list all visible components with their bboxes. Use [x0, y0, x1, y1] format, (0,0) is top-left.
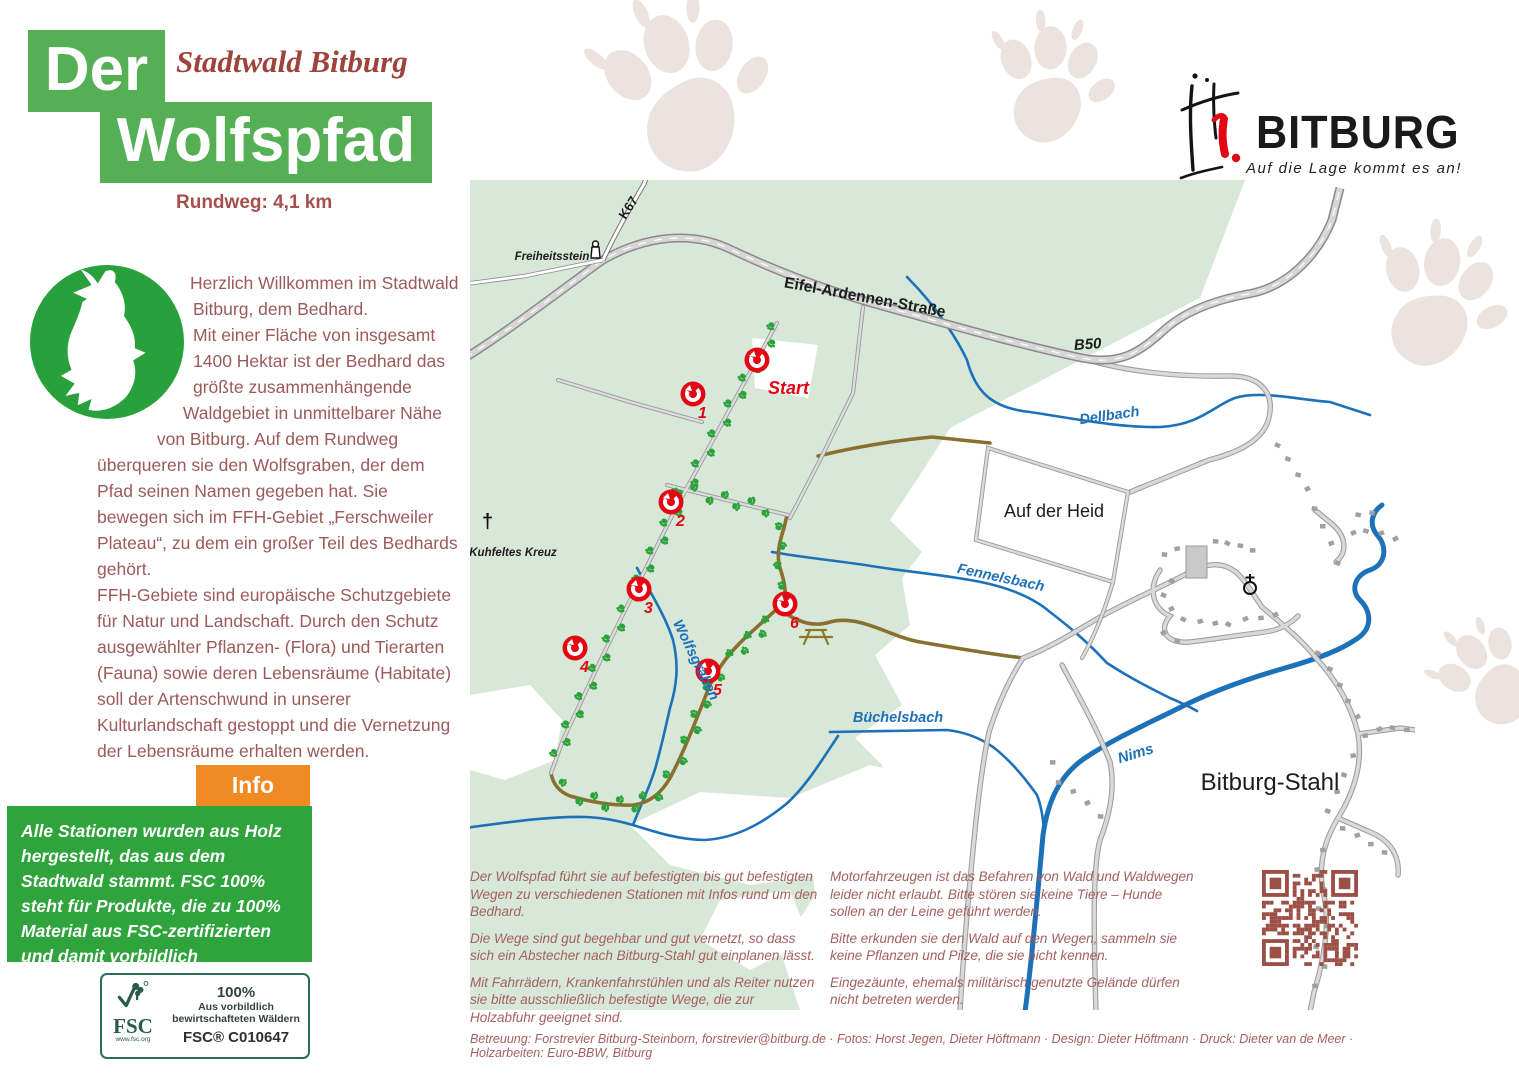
- station-number: 3: [644, 600, 653, 617]
- bitburg-tagline: Auf die Lage kommt es an!: [1246, 160, 1462, 177]
- title-word-der: Der: [28, 30, 165, 112]
- station-number: 2: [675, 513, 685, 530]
- map-label-kuhfeltes-kreuz: Kuhfeltes Kreuz: [470, 547, 557, 559]
- map-label-nims: Nims: [1116, 740, 1156, 767]
- map-label-auf-der-heid: Auf der Heid: [1004, 501, 1104, 521]
- station-number: 4: [579, 659, 589, 676]
- circle-text-wrap-spacer: [97, 270, 193, 436]
- map-label-b50: B50: [1073, 335, 1102, 354]
- fsc-label: FSC www.fsc.org 100% Aus vorbildlich bew…: [100, 973, 310, 1059]
- note-paragraph: Mit Fahrrädern, Krankenfahrstühlen und a…: [470, 974, 822, 1027]
- fsc-claim-line2: bewirtschafteten Wäldern: [164, 1013, 308, 1025]
- credits-line: Betreuung: Forstrevier Bitburg-Steinborn…: [470, 1032, 1390, 1060]
- bitburg-wordmark: BITBURG: [1256, 105, 1460, 159]
- map-label-buechelsbach: Büchelsbach: [853, 710, 943, 726]
- paw-print-icon: [975, 2, 1129, 152]
- note-paragraph: Eingezäunte, ehemals militärisch genutzt…: [830, 974, 1198, 1009]
- fsc-text-block: 100% Aus vorbildlich bewirtschafteten Wä…: [164, 975, 308, 1057]
- note-paragraph: Motorfahrzeugen ist das Befahren von Wal…: [830, 868, 1198, 921]
- info-tab: Info: [196, 765, 310, 806]
- title-word-wolfspfad: Wolfspfad: [100, 102, 432, 183]
- bitburg-logo-mark: [1178, 70, 1256, 185]
- fsc-percent: 100%: [164, 984, 308, 1001]
- intro-paragraph: FFH-Gebiete sind europäische Schutzgebie…: [97, 582, 463, 764]
- fsc-wordmark: FSC: [102, 1016, 164, 1036]
- station-number: 6: [790, 615, 799, 632]
- paw-print-icon: [572, 0, 793, 189]
- note-paragraph: Der Wolfspfad führt sie auf befestigten …: [470, 868, 822, 921]
- wolfspfad-info-sign: { "header": { "title_line1": "Der", "tit…: [0, 0, 1519, 1080]
- map-label-freiheitsstein: Freiheitsstein: [515, 251, 590, 263]
- fsc-tree-check-icon: [116, 981, 150, 1011]
- note-paragraph: Die Wege sind gut begehbar und gut verne…: [470, 930, 822, 965]
- trail-distance: Rundweg: 4,1 km: [176, 192, 332, 214]
- usage-notes-right: Motorfahrzeugen ist das Befahren von Wal…: [830, 868, 1198, 1018]
- intro-text: Herzlich Willkommen im Stadtwald Bitburg…: [97, 270, 463, 764]
- monument-icon: [591, 241, 600, 258]
- fsc-certificate-code: FSC® C010647: [164, 1029, 308, 1046]
- wayside-cross-icon: †: [482, 511, 493, 533]
- station-number: 1: [698, 405, 707, 422]
- fsc-claim-line1: Aus vorbildlich: [164, 1001, 308, 1013]
- fsc-logo-block: FSC www.fsc.org: [102, 975, 164, 1057]
- map-label-bitburg-stahl: Bitburg-Stahl: [1201, 769, 1340, 796]
- qr-code: [1262, 870, 1358, 966]
- usage-notes-left: Der Wolfspfad führt sie auf befestigten …: [470, 868, 822, 1035]
- note-paragraph: Bitte erkunden sie den Wald auf den Wege…: [830, 930, 1198, 965]
- fsc-url: www.fsc.org: [102, 1036, 164, 1043]
- station-marker-icon: [745, 348, 770, 373]
- large-building: [1186, 546, 1207, 578]
- paw-print-icon: [1410, 593, 1519, 749]
- subtitle-stadtwald-bitburg: Stadtwald Bitburg: [176, 44, 408, 80]
- map-label-fennelsbach: Fennelsbach: [956, 561, 1046, 595]
- info-green-box: Alle Stationen wurden aus Holz hergestel…: [7, 806, 312, 962]
- start-label: Start: [768, 378, 810, 398]
